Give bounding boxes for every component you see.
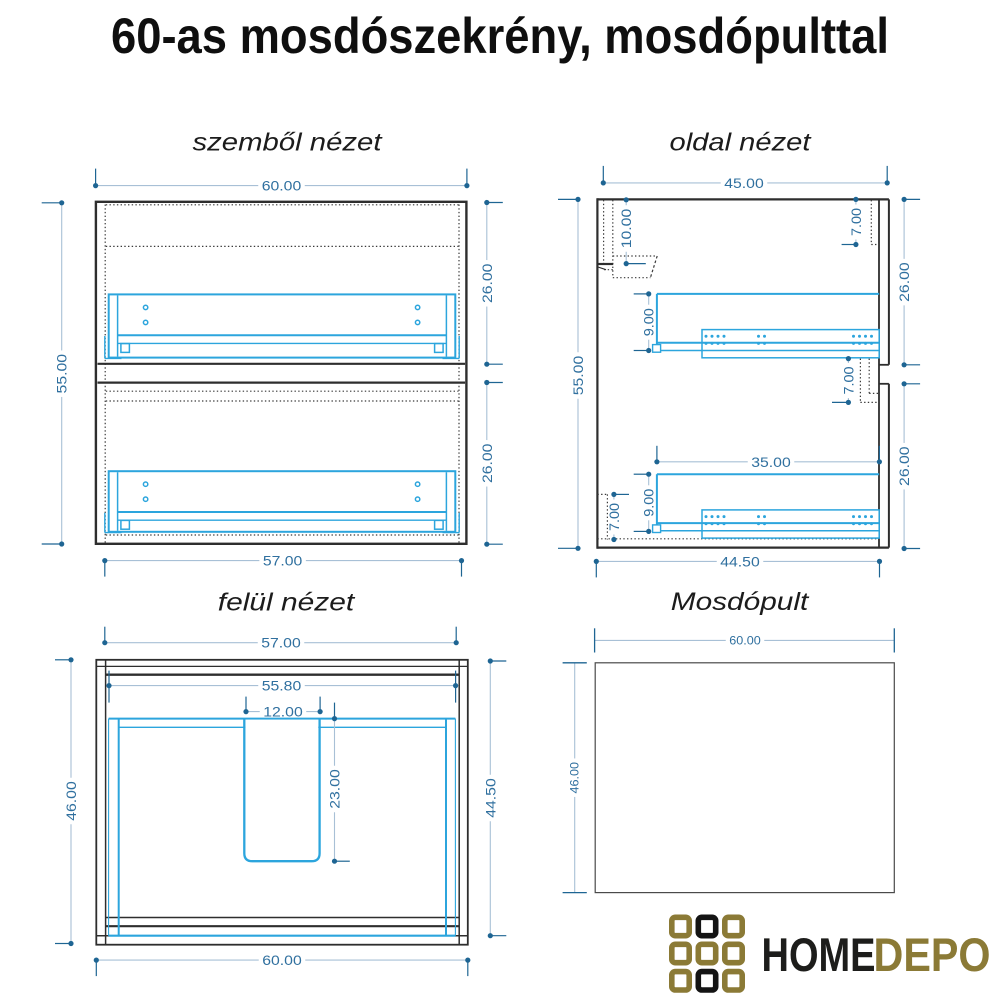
svg-text:26.00: 26.00 bbox=[896, 446, 912, 486]
svg-text:46.00: 46.00 bbox=[63, 781, 79, 821]
svg-text:23.00: 23.00 bbox=[327, 769, 343, 809]
svg-text:44.50: 44.50 bbox=[482, 778, 498, 818]
svg-text:7.00: 7.00 bbox=[848, 208, 864, 236]
svg-text:57.00: 57.00 bbox=[263, 553, 303, 569]
svg-text:26.00: 26.00 bbox=[479, 443, 495, 483]
svg-text:10.00: 10.00 bbox=[618, 209, 634, 249]
svg-text:57.00: 57.00 bbox=[261, 635, 301, 651]
svg-text:Mosdópult: Mosdópult bbox=[671, 588, 810, 616]
svg-text:55.80: 55.80 bbox=[262, 678, 302, 694]
svg-text:35.00: 35.00 bbox=[751, 454, 791, 470]
svg-text:55.00: 55.00 bbox=[54, 354, 70, 394]
svg-text:szemből nézet: szemből nézet bbox=[193, 128, 383, 156]
svg-text:9.00: 9.00 bbox=[641, 308, 657, 336]
svg-text:55.00: 55.00 bbox=[570, 356, 586, 396]
svg-text:7.00: 7.00 bbox=[606, 503, 622, 531]
svg-text:9.00: 9.00 bbox=[641, 489, 657, 517]
svg-text:26.00: 26.00 bbox=[896, 262, 912, 302]
svg-text:60.00: 60.00 bbox=[262, 952, 302, 968]
svg-text:26.00: 26.00 bbox=[479, 263, 495, 303]
svg-text:7.00: 7.00 bbox=[840, 366, 856, 394]
svg-text:DEPO: DEPO bbox=[874, 928, 991, 981]
svg-text:HOME: HOME bbox=[762, 928, 876, 981]
svg-text:60.00: 60.00 bbox=[262, 178, 302, 194]
svg-text:12.00: 12.00 bbox=[263, 704, 303, 720]
svg-text:oldal nézet: oldal nézet bbox=[670, 128, 812, 156]
svg-text:felül nézet: felül nézet bbox=[218, 589, 356, 617]
svg-text:44.50: 44.50 bbox=[720, 553, 760, 569]
svg-text:45.00: 45.00 bbox=[724, 175, 764, 191]
svg-text:46.00: 46.00 bbox=[568, 762, 582, 794]
svg-text:60.00: 60.00 bbox=[729, 633, 761, 647]
svg-text:60-as mosdószekrény, mosdópult: 60-as mosdószekrény, mosdópulttal bbox=[111, 8, 889, 64]
